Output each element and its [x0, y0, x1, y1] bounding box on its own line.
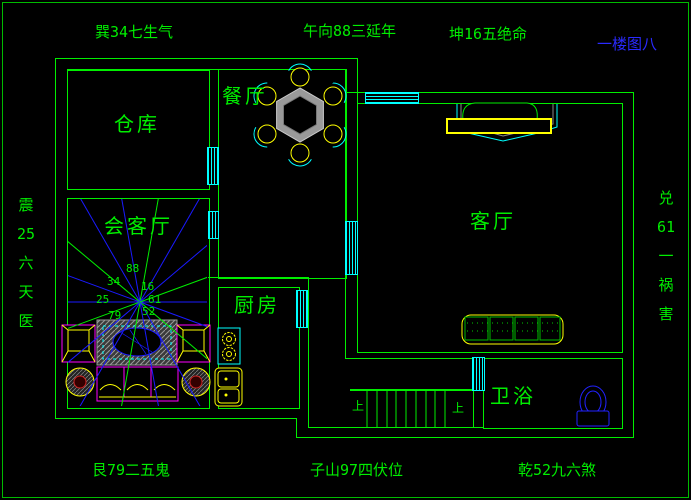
label-dui: 兑 61 一 祸 害: [653, 184, 679, 329]
floorplan-canvas: 巽34七生气 午向88三延年 坤16五绝命 一楼图八 震 25 六 天 医 兑 …: [0, 0, 691, 500]
window-living-left: [345, 221, 358, 275]
fan-number-lower-left: 79: [108, 310, 121, 322]
wall-segment: [55, 58, 358, 59]
wall-segment: [55, 58, 56, 419]
wall-segment: [633, 92, 634, 438]
wall-segment: [308, 277, 309, 428]
wall-segment: [357, 58, 358, 104]
fan-number-left: 25: [96, 294, 109, 306]
room-label-kitchen: 厨房: [234, 294, 280, 316]
fan-number-lower-right: 52: [142, 306, 155, 318]
label-gen: 艮79二五鬼: [92, 462, 170, 479]
wall-segment: [296, 418, 297, 438]
fan-number-upper-left: 34: [107, 276, 120, 288]
window-kitchen: [296, 290, 308, 328]
wall-segment: [55, 418, 297, 419]
room-label-bathroom: 卫浴: [490, 385, 536, 407]
label-kun: 坤16五绝命: [449, 26, 527, 43]
fan-number-top: 88: [126, 263, 139, 275]
room-label-warehouse: 仓库: [114, 113, 160, 135]
window-living-top: [365, 92, 419, 104]
label-zi: 子山97四伏位: [310, 462, 403, 479]
label-xun: 巽34七生气: [95, 24, 173, 41]
stairs-up-left: 上: [352, 400, 364, 413]
label-zhen: 震 25 六 天 医: [13, 191, 39, 336]
wall-segment: [345, 358, 484, 359]
stairs-up-right: 上: [452, 402, 464, 415]
floor-title: 一楼图八: [597, 36, 657, 53]
window-reception: [208, 211, 219, 239]
room-label-reception: 会客厅: [104, 215, 173, 237]
label-qian: 乾52九六煞: [518, 462, 596, 479]
label-wu: 午向88三延年: [303, 23, 396, 40]
fan-number-upper-right: 16: [141, 281, 154, 293]
room-label-dining: 餐厅: [222, 85, 268, 107]
window-stairhall: [472, 357, 485, 391]
room-label-living: 客厅: [470, 210, 516, 232]
wall-segment: [296, 437, 634, 438]
stairs-top-edge: [350, 389, 473, 391]
window-warehouse: [207, 147, 219, 185]
wall-segment: [308, 427, 484, 428]
